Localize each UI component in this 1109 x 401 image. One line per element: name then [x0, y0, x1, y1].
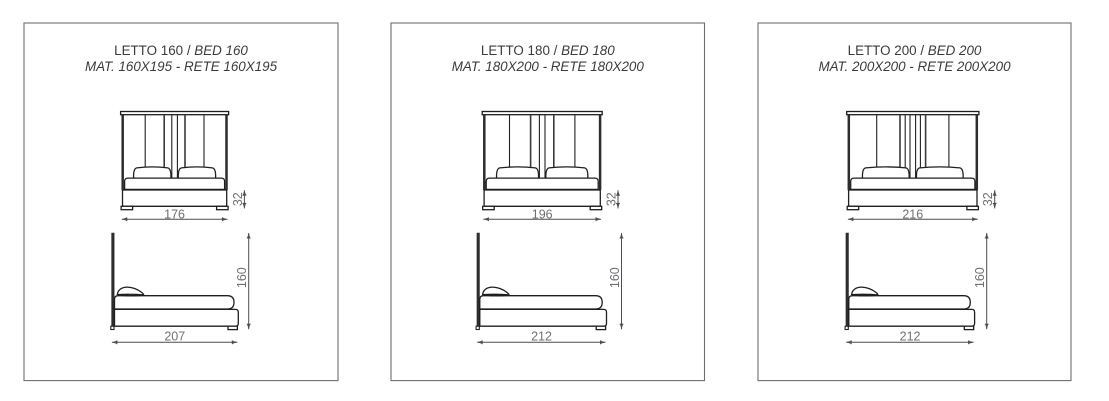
svg-text:MAT. 200X200 - RETE 200X200: MAT. 200X200 - RETE 200X200 — [818, 59, 1011, 74]
svg-text:LETTO 200 / BED 200: LETTO 200 / BED 200 — [848, 43, 982, 58]
svg-text:32: 32 — [981, 192, 995, 206]
svg-text:160: 160 — [235, 267, 249, 288]
svg-text:212: 212 — [531, 330, 552, 344]
svg-text:160: 160 — [608, 267, 622, 288]
svg-text:196: 196 — [532, 207, 553, 221]
svg-text:207: 207 — [164, 330, 185, 344]
svg-text:LETTO 180 / BED 180: LETTO 180 / BED 180 — [481, 43, 615, 58]
svg-text:216: 216 — [902, 207, 923, 221]
svg-text:160: 160 — [973, 267, 987, 288]
svg-text:176: 176 — [164, 207, 185, 221]
svg-text:212: 212 — [900, 330, 921, 344]
svg-text:MAT. 180X200 - RETE 180X200: MAT. 180X200 - RETE 180X200 — [452, 59, 645, 74]
svg-text:32: 32 — [231, 192, 245, 206]
svg-text:32: 32 — [604, 192, 618, 206]
svg-text:LETTO 160 / BED 160: LETTO 160 / BED 160 — [114, 43, 248, 58]
svg-text:MAT. 160X195 - RETE 160X195: MAT. 160X195 - RETE 160X195 — [85, 59, 278, 74]
